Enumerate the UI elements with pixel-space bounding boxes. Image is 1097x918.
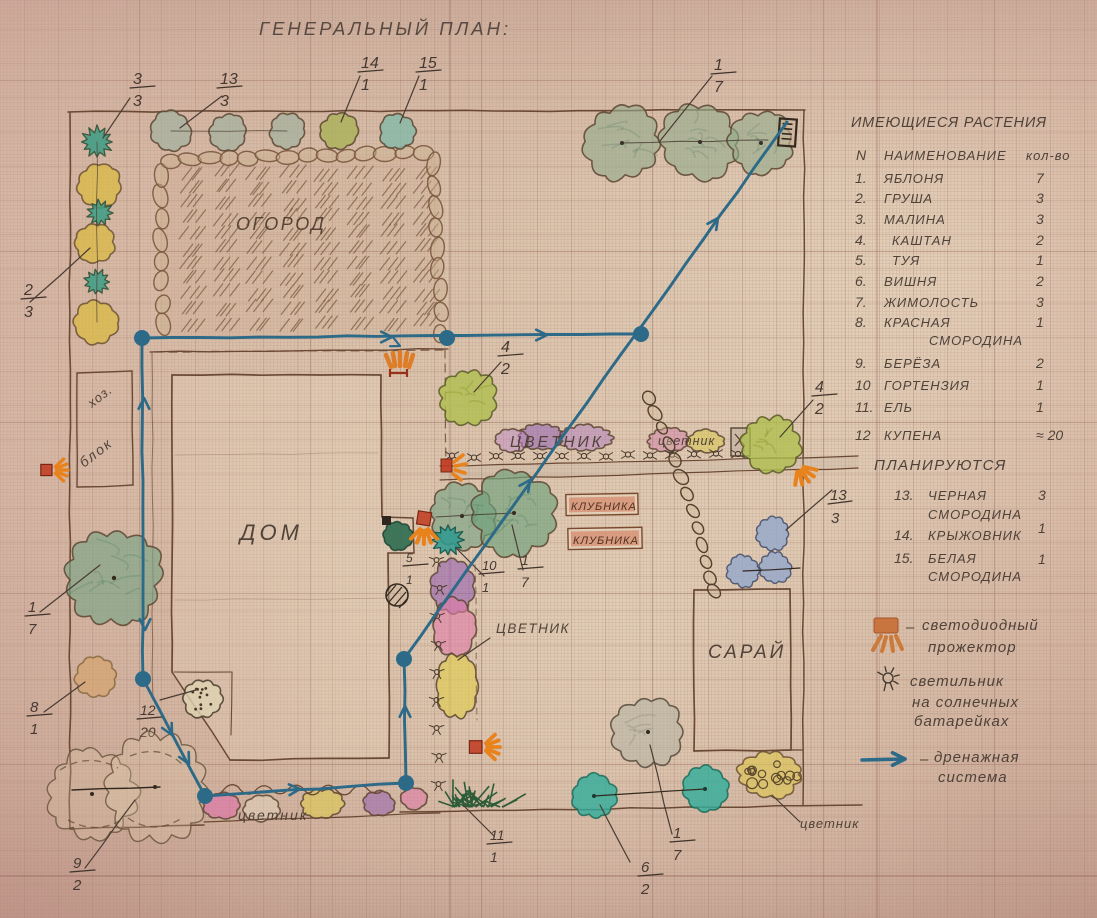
svg-text:ДОМ: ДОМ: [237, 520, 303, 545]
svg-text:1: 1: [1036, 377, 1044, 393]
svg-text:цветник: цветник: [238, 807, 308, 823]
svg-text:10: 10: [482, 558, 497, 573]
svg-text:1: 1: [714, 57, 723, 74]
svg-text:3: 3: [831, 510, 840, 527]
svg-text:1.: 1.: [855, 170, 867, 186]
svg-text:ИМЕЮЩИЕСЯ РАСТЕНИЯ: ИМЕЮЩИЕСЯ РАСТЕНИЯ: [851, 115, 1047, 131]
svg-text:светильник: светильник: [910, 673, 1004, 690]
svg-text:БЕЛАЯ: БЕЛАЯ: [928, 551, 977, 566]
svg-text:1: 1: [406, 573, 413, 587]
svg-text:1: 1: [482, 580, 489, 595]
svg-text:9.: 9.: [855, 355, 867, 371]
svg-text:7: 7: [1036, 170, 1045, 186]
svg-text:5.: 5.: [855, 252, 867, 268]
svg-text:2: 2: [23, 282, 33, 299]
svg-text:светодиодный: светодиодный: [922, 617, 1039, 634]
svg-text:8: 8: [30, 699, 39, 716]
svg-text:КЛУБНИКА: КЛУБНИКА: [571, 501, 637, 513]
svg-text:9: 9: [73, 855, 82, 872]
svg-text:СМОРОДИНА: СМОРОДИНА: [928, 569, 1022, 584]
svg-text:1: 1: [1038, 551, 1046, 567]
svg-text:1: 1: [1038, 520, 1046, 536]
svg-text:1: 1: [1036, 314, 1044, 330]
svg-text:5: 5: [406, 551, 413, 565]
svg-text:12: 12: [140, 702, 156, 718]
svg-text:N: N: [856, 147, 867, 163]
svg-text:САРАЙ: САРАЙ: [708, 641, 786, 663]
svg-text:ТУЯ: ТУЯ: [892, 253, 920, 268]
svg-text:1: 1: [673, 825, 681, 842]
svg-text:ЕЛЬ: ЕЛЬ: [884, 400, 913, 415]
svg-text:ЧЕРНАЯ: ЧЕРНАЯ: [928, 488, 987, 503]
svg-text:система: система: [938, 769, 1008, 786]
svg-text:3: 3: [1036, 190, 1044, 206]
svg-text:КРЫЖОВНИК: КРЫЖОВНИК: [928, 528, 1022, 543]
svg-text:кол-во: кол-во: [1026, 148, 1070, 163]
svg-text:6.: 6.: [855, 273, 867, 289]
svg-text:3: 3: [1036, 211, 1044, 227]
svg-text:ГРУША: ГРУША: [884, 191, 933, 206]
svg-text:НАИМЕНОВАНИЕ: НАИМЕНОВАНИЕ: [884, 148, 1007, 163]
svg-text:ЦВЕТНИК: ЦВЕТНИК: [496, 621, 570, 636]
svg-text:2: 2: [814, 401, 824, 418]
svg-text:БЕРЁЗА: БЕРЁЗА: [884, 356, 941, 371]
svg-text:3: 3: [24, 304, 33, 321]
svg-text:≈ 20: ≈ 20: [1036, 427, 1063, 443]
svg-text:3: 3: [1036, 294, 1044, 310]
svg-text:10: 10: [855, 377, 871, 393]
svg-text:ПЛАНИРУЮТСЯ: ПЛАНИРУЮТСЯ: [874, 457, 1007, 474]
svg-text:7: 7: [714, 79, 724, 96]
svg-text:1: 1: [28, 599, 36, 616]
svg-text:2: 2: [1035, 273, 1044, 289]
svg-text:12: 12: [855, 427, 871, 443]
svg-text:7: 7: [521, 574, 530, 590]
svg-text:14.: 14.: [894, 527, 913, 543]
svg-text:4.: 4.: [855, 232, 867, 248]
svg-text:ВИШНЯ: ВИШНЯ: [884, 274, 937, 289]
svg-text:–: –: [919, 751, 930, 768]
svg-text:2: 2: [72, 877, 82, 894]
svg-text:2: 2: [500, 361, 510, 378]
svg-text:ГОРТЕНЗИЯ: ГОРТЕНЗИЯ: [884, 378, 970, 393]
svg-text:7: 7: [28, 621, 37, 638]
svg-text:2: 2: [1035, 355, 1044, 371]
svg-text:цветник: цветник: [800, 816, 859, 831]
svg-text:13: 13: [220, 71, 238, 88]
svg-text:4: 4: [815, 379, 824, 396]
svg-text:СМОРОДИНА: СМОРОДИНА: [929, 333, 1023, 348]
svg-text:7.: 7.: [855, 294, 867, 310]
svg-text:ОГОРОД: ОГОРОД: [236, 214, 326, 234]
svg-text:2.: 2.: [854, 190, 867, 206]
svg-text:КАШТАН: КАШТАН: [892, 233, 952, 248]
svg-text:8.: 8.: [855, 314, 867, 330]
svg-text:3: 3: [133, 93, 142, 110]
svg-text:СМОРОДИНА: СМОРОДИНА: [928, 507, 1022, 522]
svg-text:2: 2: [640, 881, 650, 898]
svg-text:–: –: [905, 619, 916, 636]
svg-text:6: 6: [641, 859, 650, 876]
svg-text:3: 3: [1038, 487, 1046, 503]
svg-text:дренажная: дренажная: [934, 749, 1020, 766]
svg-text:1: 1: [361, 77, 370, 94]
svg-text:15: 15: [419, 55, 437, 72]
svg-text:КЛУБНИКА: КЛУБНИКА: [573, 535, 639, 547]
svg-text:7: 7: [673, 847, 682, 864]
svg-text:1: 1: [30, 721, 38, 738]
svg-text:МАЛИНА: МАЛИНА: [884, 212, 946, 227]
svg-text:прожектор: прожектор: [928, 639, 1017, 656]
svg-text:1: 1: [419, 77, 428, 94]
svg-text:3: 3: [133, 71, 142, 88]
svg-text:1: 1: [1036, 399, 1044, 415]
svg-text:3.: 3.: [855, 211, 867, 227]
svg-text:ГЕНЕРАЛЬНЫЙ ПЛАН:: ГЕНЕРАЛЬНЫЙ ПЛАН:: [259, 18, 511, 39]
svg-text:ЖИМОЛОСТЬ: ЖИМОЛОСТЬ: [883, 295, 979, 310]
svg-text:15.: 15.: [894, 550, 913, 566]
svg-text:КУПЕНА: КУПЕНА: [884, 428, 942, 443]
svg-text:4: 4: [501, 339, 510, 356]
svg-text:1: 1: [1036, 252, 1044, 268]
svg-text:батарейках: батарейках: [914, 713, 1009, 730]
svg-text:КРАСНАЯ: КРАСНАЯ: [884, 315, 951, 330]
svg-text:14: 14: [361, 55, 379, 72]
svg-text:2: 2: [1035, 232, 1044, 248]
svg-text:ЯБЛОНЯ: ЯБЛОНЯ: [883, 171, 944, 186]
svg-text:13.: 13.: [894, 487, 913, 503]
svg-text:11.: 11.: [855, 399, 873, 415]
svg-text:1: 1: [490, 849, 498, 865]
svg-text:на солнечных: на солнечных: [912, 694, 1019, 711]
svg-text:3: 3: [220, 93, 229, 110]
